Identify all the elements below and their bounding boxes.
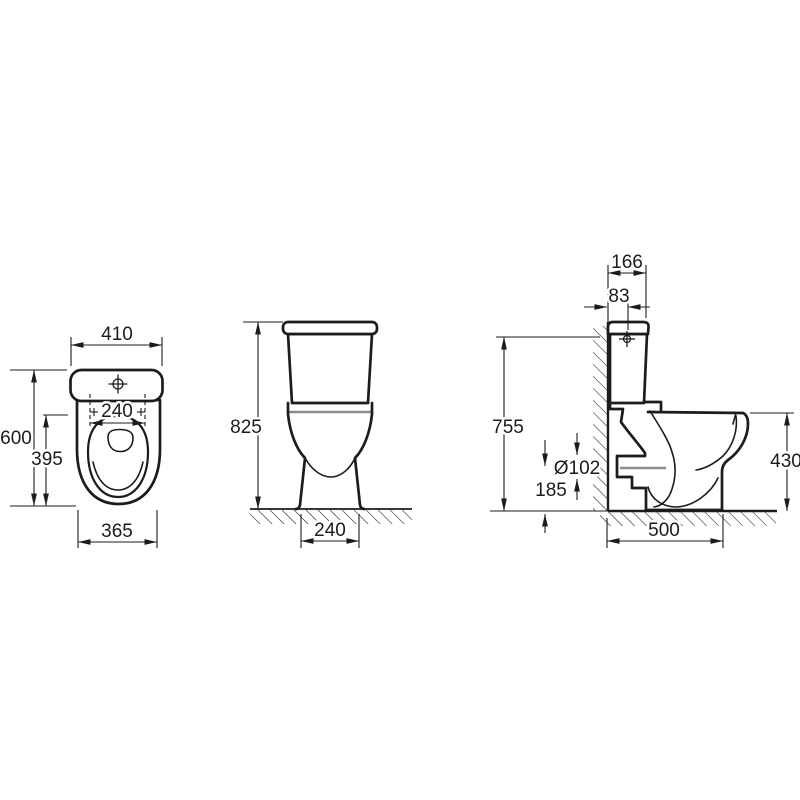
side-seat-top <box>648 412 743 413</box>
front-cistern <box>288 334 372 403</box>
dim-label-outlet-axis-height: 185 <box>535 480 567 501</box>
side-cistern <box>610 334 647 403</box>
front-bowl-right <box>355 403 372 509</box>
dim-label-bowl-depth: 395 <box>31 449 63 470</box>
side-pan-back-outline <box>610 403 646 510</box>
dim-top-bowl-depth: 395 <box>31 415 68 506</box>
front-bowl-left <box>288 403 305 509</box>
side-seat-hinge <box>644 402 661 411</box>
dim-label-cistern-height: 755 <box>492 417 524 438</box>
dim-top-bowl-width: 365 <box>78 510 157 548</box>
dim-label-base-width: 240 <box>314 520 346 541</box>
dim-top-total-depth: 600 <box>0 370 76 506</box>
dim-label-total-depth: 600 <box>0 428 32 449</box>
dim-side-tank-depth: 166 <box>608 252 646 318</box>
dim-side-outlet-axis-height: 185 <box>535 440 567 533</box>
view-front: 825 240 <box>230 322 412 548</box>
dim-side-rim-height: 430 <box>750 413 800 511</box>
side-bowl-front-outline <box>722 413 748 510</box>
dim-label-outlet-diameter: Ø102 <box>554 458 600 479</box>
dim-label-tank-width: 410 <box>101 324 133 345</box>
view-top: 410 600 395 240 <box>0 324 162 548</box>
dim-label-inlet-offset: 83 <box>608 286 629 307</box>
dim-label-seat-inner-width: 240 <box>101 401 133 422</box>
top-cistern <box>71 370 163 401</box>
dim-label-total-height: 825 <box>230 417 262 438</box>
side-trap-curve <box>650 411 675 507</box>
dim-label-total-depth-from-wall: 500 <box>648 520 680 541</box>
dim-label-rim-height: 430 <box>770 451 800 472</box>
dim-label-tank-depth: 166 <box>611 252 643 273</box>
toilet-dimension-drawing: 410 600 395 240 <box>0 0 800 800</box>
view-side: 166 83 755 430 Ø102 <box>490 252 800 548</box>
drawing-sheet: 410 600 395 240 <box>0 0 800 800</box>
dim-label-bowl-width: 365 <box>101 521 133 542</box>
side-floor-hatch <box>600 512 776 526</box>
dim-top-tank-width: 410 <box>71 324 162 366</box>
side-inner-rim-curve <box>696 416 736 470</box>
side-wall-hatch <box>593 326 608 511</box>
side-sump-curve <box>648 478 718 507</box>
dim-front-total-height: 825 <box>230 322 283 509</box>
front-cistern-lid <box>283 322 377 334</box>
front-bowl-bottom-arc <box>305 458 355 477</box>
